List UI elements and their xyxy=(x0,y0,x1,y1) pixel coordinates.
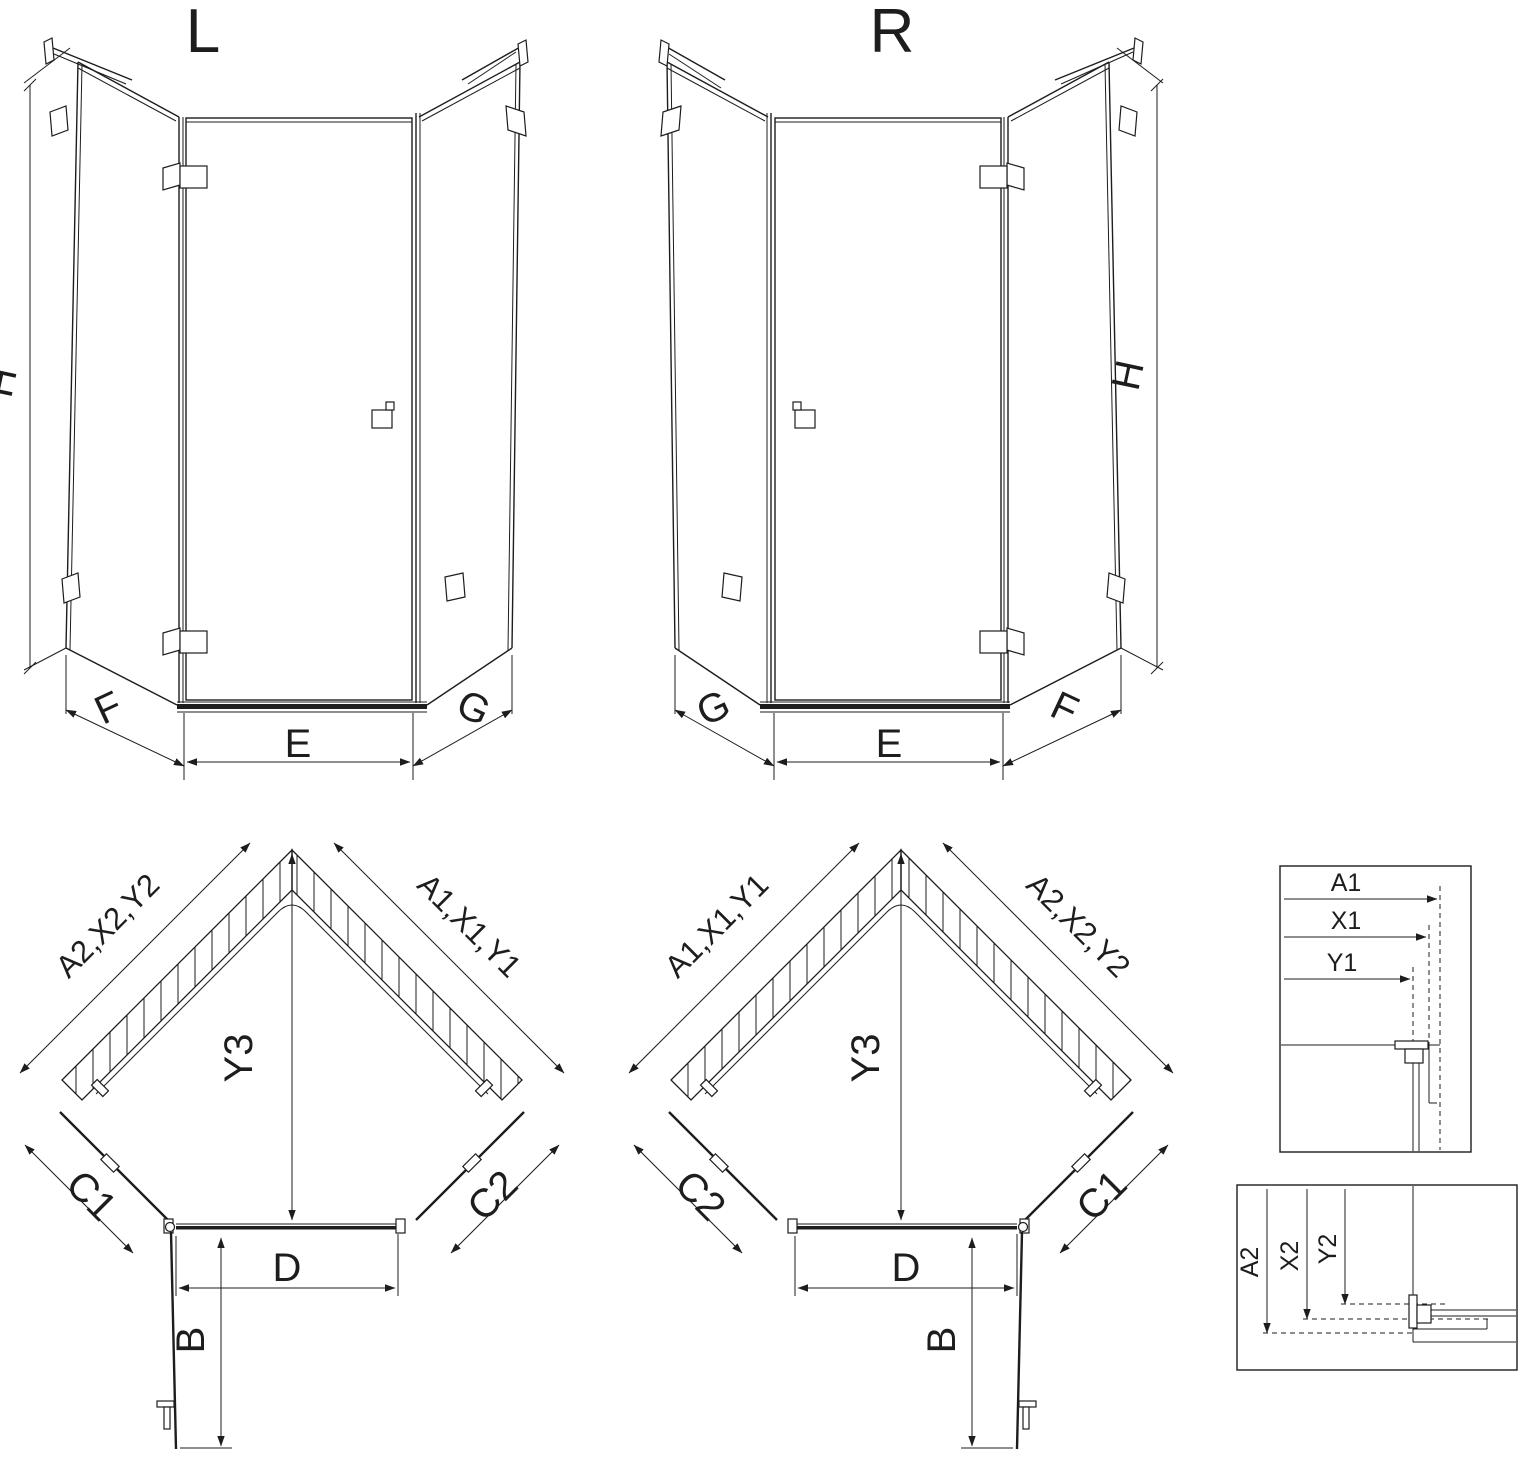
door-handle-icon xyxy=(1023,1407,1029,1429)
glass-clamp-icon xyxy=(101,1154,119,1172)
top-wall-profile-right xyxy=(462,40,528,84)
door-panel xyxy=(163,113,420,703)
right-side-panel xyxy=(419,62,526,705)
wall-clamp-icon xyxy=(661,106,681,136)
wall-clamp-icon xyxy=(62,573,80,603)
wall-section-right xyxy=(292,850,522,1100)
dimension-label-h: H xyxy=(0,364,26,401)
dimension-label-d: D xyxy=(892,1246,921,1290)
dimension-c2: C2 xyxy=(451,1145,559,1253)
wall-clamp-icon xyxy=(445,573,465,601)
top-wall-profile-left xyxy=(44,38,132,84)
dimension-g: G xyxy=(413,655,512,766)
plan-view-right: A1,X1,Y1 A2,X2,Y2 Y3 C2 C1 D B xyxy=(629,843,1173,1449)
detail-label-y2: Y2 xyxy=(1314,1234,1342,1265)
dimension-label-wall-left: A1,X1,Y1 xyxy=(658,867,775,984)
shower-enclosure-diagram: L xyxy=(0,0,1523,1460)
profile-section-detail xyxy=(1409,1186,1516,1342)
doorway-edge xyxy=(164,1219,405,1233)
dimension-c1: C1 xyxy=(1060,1145,1168,1253)
dimension-label-g: G xyxy=(450,682,497,735)
dimension-c1: C1 xyxy=(25,1145,133,1253)
door-handle-icon xyxy=(793,402,801,410)
wall-section-right xyxy=(901,850,1131,1100)
door-handle-icon xyxy=(164,1407,170,1429)
dimension-e: E xyxy=(774,713,1003,780)
dimension-f: F xyxy=(66,655,184,766)
elevation-view-left: L xyxy=(0,0,528,780)
door-hinge-icon xyxy=(163,628,207,655)
glass-clamp-icon xyxy=(463,1154,481,1172)
dimension-e: E xyxy=(184,713,413,780)
dimension-label-d: D xyxy=(273,1246,302,1290)
door-handle-icon xyxy=(386,402,394,410)
dimension-c2: C2 xyxy=(634,1145,742,1253)
dimension-label-wall-right: A1,X1,Y1 xyxy=(411,867,528,984)
left-side-panel xyxy=(50,62,179,705)
view-title-right: R xyxy=(870,0,915,66)
dimension-label-c2: C2 xyxy=(667,1162,734,1229)
door-handle-icon xyxy=(795,410,815,428)
wall-clamp-icon xyxy=(506,106,526,136)
dimension-label-b: B xyxy=(169,1327,213,1354)
elevation-view-right: R xyxy=(659,0,1163,780)
dimension-d: D xyxy=(795,1234,1017,1296)
dimension-label-c1: C1 xyxy=(58,1162,125,1229)
technical-drawing-page: L xyxy=(0,0,1523,1460)
door-handle-icon xyxy=(157,1401,174,1407)
detail-label-y1: Y1 xyxy=(1327,949,1358,977)
dimension-label-e: E xyxy=(876,722,903,766)
dimension-label-e: E xyxy=(285,722,312,766)
dimension-label-h: H xyxy=(1104,357,1153,394)
dimension-label-y3: Y3 xyxy=(844,1034,888,1083)
open-door-plan xyxy=(1017,1232,1036,1449)
wall-clamp-icon xyxy=(50,106,68,136)
dimension-label-g: G xyxy=(690,682,737,735)
dimension-h: H xyxy=(0,48,70,674)
door-hinge-icon xyxy=(163,163,207,190)
dimension-f: F xyxy=(1003,655,1121,766)
dimension-g: G xyxy=(675,655,774,766)
dimension-label-f: F xyxy=(88,683,129,733)
detail-label-a1: A1 xyxy=(1331,869,1362,897)
dimension-label-y3: Y3 xyxy=(217,1034,261,1083)
left-side-panel xyxy=(661,62,768,705)
detail-label-x1: X1 xyxy=(1331,907,1362,935)
detail-box-top: A1 X1 Y1 xyxy=(1280,866,1471,1152)
threshold-sill xyxy=(760,702,1010,712)
door-panel xyxy=(767,113,1024,703)
glass-clamp-icon xyxy=(701,1080,718,1097)
glass-clamp-icon xyxy=(1072,1154,1090,1172)
dimension-d: D xyxy=(176,1234,398,1296)
dimension-b: B xyxy=(169,1238,232,1448)
top-wall-profile-right xyxy=(1055,38,1143,84)
wall-clamp-icon xyxy=(1107,573,1125,603)
dimension-label-c1: C1 xyxy=(1068,1162,1135,1229)
dimension-label-c2: C2 xyxy=(459,1162,526,1229)
profile-section-detail xyxy=(1281,1041,1440,1151)
door-hinge-icon xyxy=(980,628,1024,655)
detail-box-bottom: A2 X2 Y2 xyxy=(1236,1185,1517,1370)
dimension-label-wall-right: A2,X2,Y2 xyxy=(1020,867,1137,984)
top-wall-profile-left xyxy=(659,40,725,88)
wall-clamp-icon xyxy=(722,573,742,601)
glass-clamp-icon xyxy=(1085,1080,1102,1097)
threshold-sill xyxy=(177,702,427,712)
glass-clamp-icon xyxy=(92,1080,109,1097)
dimension-label-wall-left: A2,X2,Y2 xyxy=(49,867,166,984)
detail-label-x2: X2 xyxy=(1276,1241,1304,1272)
door-hinge-icon xyxy=(980,163,1024,190)
door-handle-icon xyxy=(372,410,392,428)
detail-label-a2: A2 xyxy=(1236,1247,1264,1278)
dimension-b: B xyxy=(920,1238,1013,1448)
glass-clamp-icon xyxy=(476,1080,493,1097)
dimension-label-f: F xyxy=(1044,683,1085,733)
view-title-left: L xyxy=(186,0,220,66)
doorway-edge xyxy=(788,1219,1029,1233)
dimension-label-b: B xyxy=(920,1327,964,1354)
plan-view-left: A2,X2,Y2 A1,X1,Y1 Y3 C1 C2 D B xyxy=(20,843,564,1449)
door-handle-icon xyxy=(1019,1401,1036,1407)
glass-clamp-icon xyxy=(710,1154,728,1172)
wall-clamp-icon xyxy=(1119,106,1137,136)
